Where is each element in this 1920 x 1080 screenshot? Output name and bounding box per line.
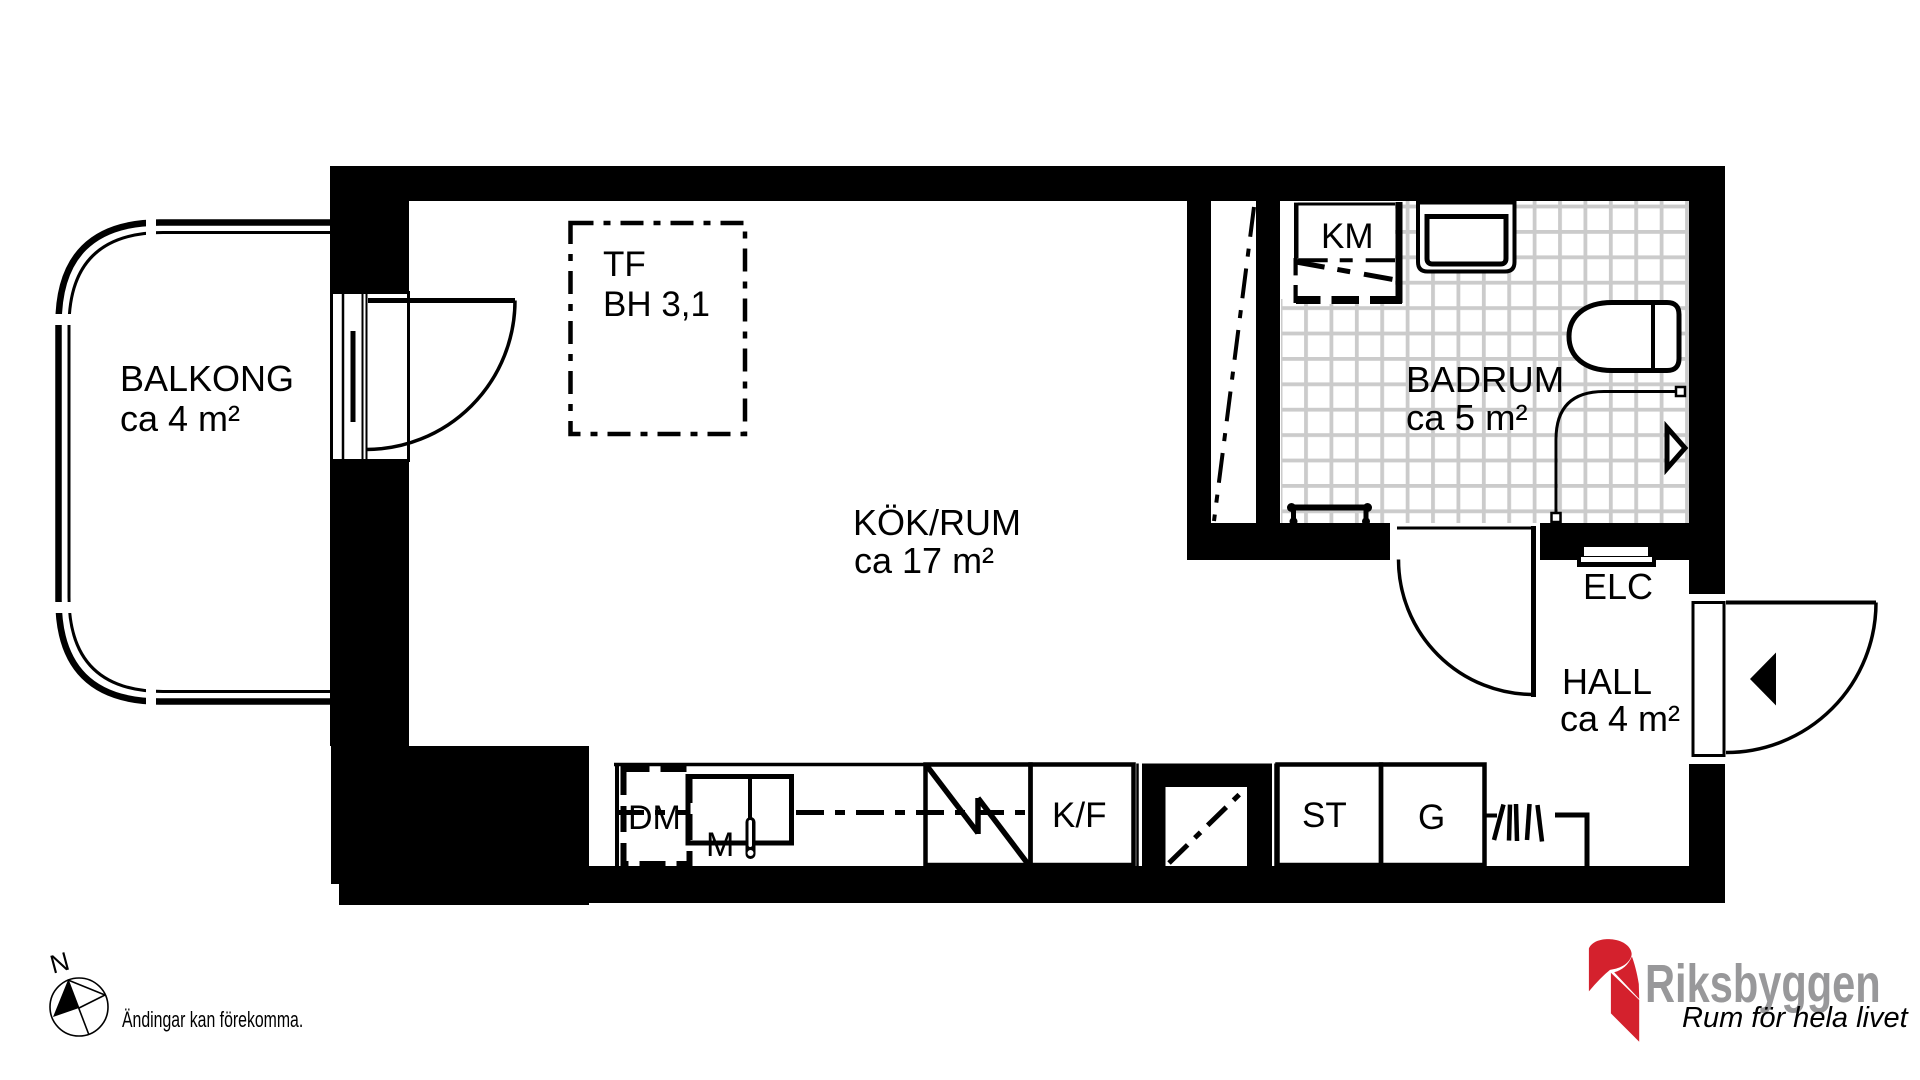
svg-text:BADRUM: BADRUM [1406, 359, 1564, 400]
svg-text:Rum för hela livet: Rum för hela livet [1682, 1002, 1910, 1034]
svg-text:HALL: HALL [1562, 661, 1652, 702]
svg-text:ca 5 m²: ca 5 m² [1406, 397, 1528, 438]
svg-text:BH 3,1: BH 3,1 [603, 285, 710, 324]
svg-text:Ändingar kan förekomma.: Ändingar kan förekomma. [122, 1009, 303, 1033]
svg-text:DM: DM [628, 799, 681, 837]
svg-text:G: G [1418, 798, 1445, 837]
svg-text:ca 4 m²: ca 4 m² [1560, 698, 1680, 739]
svg-text:ELC: ELC [1583, 566, 1653, 607]
svg-text:ca 4 m²: ca 4 m² [120, 398, 240, 439]
svg-text:ca 17 m²: ca 17 m² [854, 540, 994, 581]
svg-text:ST: ST [1302, 796, 1347, 835]
svg-text:BALKONG: BALKONG [120, 358, 294, 399]
svg-text:M: M [706, 826, 734, 864]
svg-text:KM: KM [1321, 217, 1374, 256]
svg-text:TF: TF [603, 245, 646, 284]
svg-text:K/F: K/F [1052, 796, 1106, 835]
svg-text:KÖK/RUM: KÖK/RUM [853, 502, 1021, 543]
